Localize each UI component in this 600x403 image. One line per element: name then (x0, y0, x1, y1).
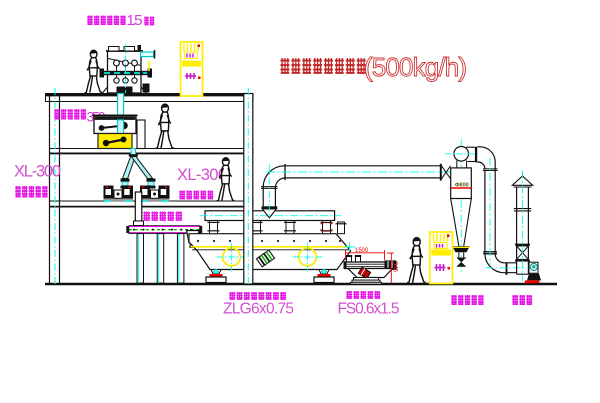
svg-text:Φ800: Φ800 (455, 183, 469, 189)
svg-text:1.5: 1.5 (127, 12, 143, 29)
svg-text:1500: 1500 (355, 248, 369, 254)
svg-text:545: 545 (392, 262, 398, 273)
svg-text:ZLG6x0.75: ZLG6x0.75 (223, 301, 294, 318)
svg-text:(500kg/h): (500kg/h) (364, 52, 467, 82)
svg-text:XL-300: XL-300 (177, 166, 227, 184)
svg-text:FS0.6x1.5: FS0.6x1.5 (338, 301, 400, 318)
svg-text:XL-300: XL-300 (14, 163, 61, 181)
